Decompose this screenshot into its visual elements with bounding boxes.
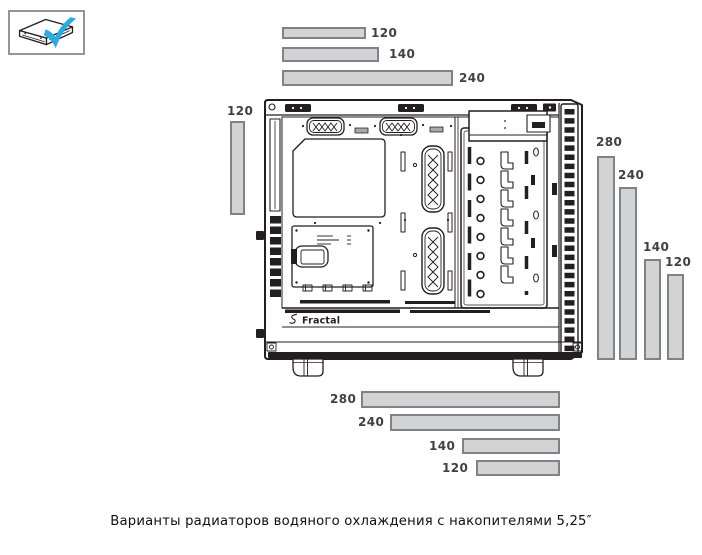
odd-bay (469, 111, 550, 141)
thumbscrew-knob (256, 329, 264, 338)
radiator-size-label-top-140: 140 (389, 47, 415, 62)
radiator-size-label-bottom-280: 280 (330, 391, 356, 408)
radiator-size-label-rear-120: 120 (227, 104, 253, 118)
radiator-size-label-top-240: 240 (459, 70, 485, 86)
thumbscrew-knob (256, 231, 264, 240)
radiator-bar-top-140 (282, 47, 379, 62)
radiator-bar-bottom-240 (390, 414, 560, 431)
radiator-size-label-top-120: 120 (371, 27, 397, 39)
radiator-size-label-bottom-120: 120 (442, 460, 468, 476)
radiator-bar-front-240 (619, 187, 637, 360)
radiator-bar-rear-120 (230, 121, 245, 215)
radiator-size-label-front-140: 140 (643, 240, 669, 254)
radiator-size-label-bottom-140: 140 (429, 438, 455, 454)
case-foot (513, 359, 543, 376)
radiator-size-label-front-240: 240 (618, 168, 644, 182)
radiator-bar-bottom-280 (361, 391, 560, 408)
caption: Варианты радиаторов водяного охлаждения … (0, 514, 702, 529)
case-illustration: Fractal (255, 95, 595, 385)
radiator-bar-top-240 (282, 70, 453, 86)
radiator-options-diagram: Fractal 120 (0, 0, 702, 555)
radiator-bar-top-120 (282, 27, 366, 39)
fractal-logo-text: Fractal (302, 316, 340, 327)
radiator-size-label-front-120: 120 (665, 255, 691, 269)
legend-5-25-drive-box (8, 10, 85, 55)
odd-drive-check-icon (11, 13, 82, 52)
radiator-bar-front-120 (667, 274, 684, 360)
case-foot (293, 359, 323, 376)
radiator-bar-front-280 (597, 156, 615, 360)
radiator-bar-bottom-120 (476, 460, 560, 476)
radiator-bar-front-140 (644, 259, 661, 360)
radiator-size-label-bottom-240: 240 (358, 414, 384, 431)
radiator-bar-bottom-140 (462, 438, 560, 454)
radiator-size-label-front-280: 280 (596, 135, 622, 149)
